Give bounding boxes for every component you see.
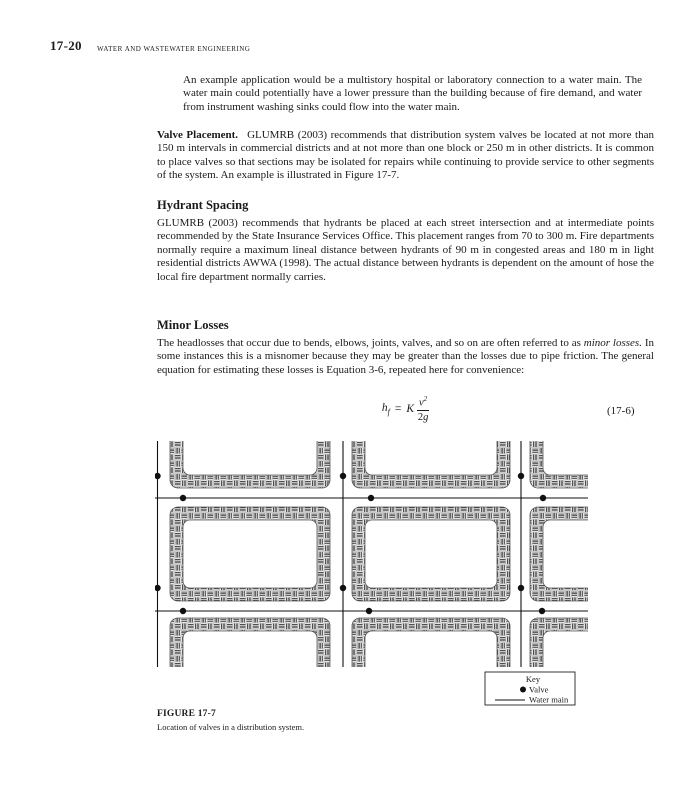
city-block (352, 507, 510, 601)
equation-number: (17-6) (607, 405, 635, 417)
figure-key: Key Valve Water main (485, 672, 575, 705)
equation-lhs: hf (382, 402, 390, 416)
city-block (170, 507, 330, 601)
page-number: 17-20 (50, 38, 82, 54)
minor-losses-heading: Minor Losses (157, 318, 229, 333)
valve-dot (540, 495, 546, 501)
valve-dot (155, 585, 161, 591)
valve-legend-icon (520, 687, 526, 693)
key-title: Key (526, 674, 541, 684)
valve-placement-run-in-heading: Valve Placement. (157, 129, 238, 141)
valve-dot (180, 495, 186, 501)
minor-losses-paragraph: The headlosses that occur due to bends, … (157, 337, 654, 377)
equation-equals-sign: = (395, 403, 402, 415)
hydrant-spacing-paragraph: GLUMRB (2003) recommends that hydrants b… (157, 217, 654, 284)
valve-dot (340, 473, 346, 479)
valve-dot (155, 473, 161, 479)
city-block (530, 507, 592, 601)
city-block (170, 618, 330, 708)
equation-math: hf = K v2 2g (382, 396, 429, 423)
textbook-page: 17-20 WATER AND WASTEWATER ENGINEERING A… (0, 0, 689, 800)
valve-placement-paragraph: Valve Placement.GLUMRB (2003) recommends… (157, 129, 654, 183)
minor-losses-lead: The headlosses that occur due to bends, … (157, 337, 584, 349)
valve-dot (180, 608, 186, 614)
equation-denominator: 2g (417, 411, 429, 423)
equation-coefficient: K (406, 403, 414, 415)
equation-fraction: v2 2g (417, 396, 429, 423)
equation-17-6: hf = K v2 2g (157, 396, 654, 423)
intro-paragraph: An example application would be a multis… (183, 74, 642, 114)
valve-dot (340, 585, 346, 591)
figure-caption-label: FIGURE 17-7 (157, 709, 216, 719)
hydrant-spacing-heading: Hydrant Spacing (157, 198, 248, 213)
city-block (352, 441, 510, 488)
city-blocks (170, 441, 592, 708)
valve-dot (518, 473, 524, 479)
figure-caption-text: Location of valves in a distribution sys… (157, 722, 304, 732)
equation-numerator: v2 (417, 396, 429, 411)
figure-17-7-diagram: Key Valve Water main (155, 441, 592, 708)
city-block (170, 441, 330, 488)
key-valve-label: Valve (529, 685, 549, 695)
city-block (530, 441, 592, 488)
running-head: WATER AND WASTEWATER ENGINEERING (97, 45, 250, 53)
valve-dot (366, 608, 372, 614)
valve-dot (368, 495, 374, 501)
valve-dot (539, 608, 545, 614)
valve-dot (518, 585, 524, 591)
key-water-main-label: Water main (529, 695, 569, 705)
minor-losses-italic-term: minor losses. (584, 337, 642, 349)
